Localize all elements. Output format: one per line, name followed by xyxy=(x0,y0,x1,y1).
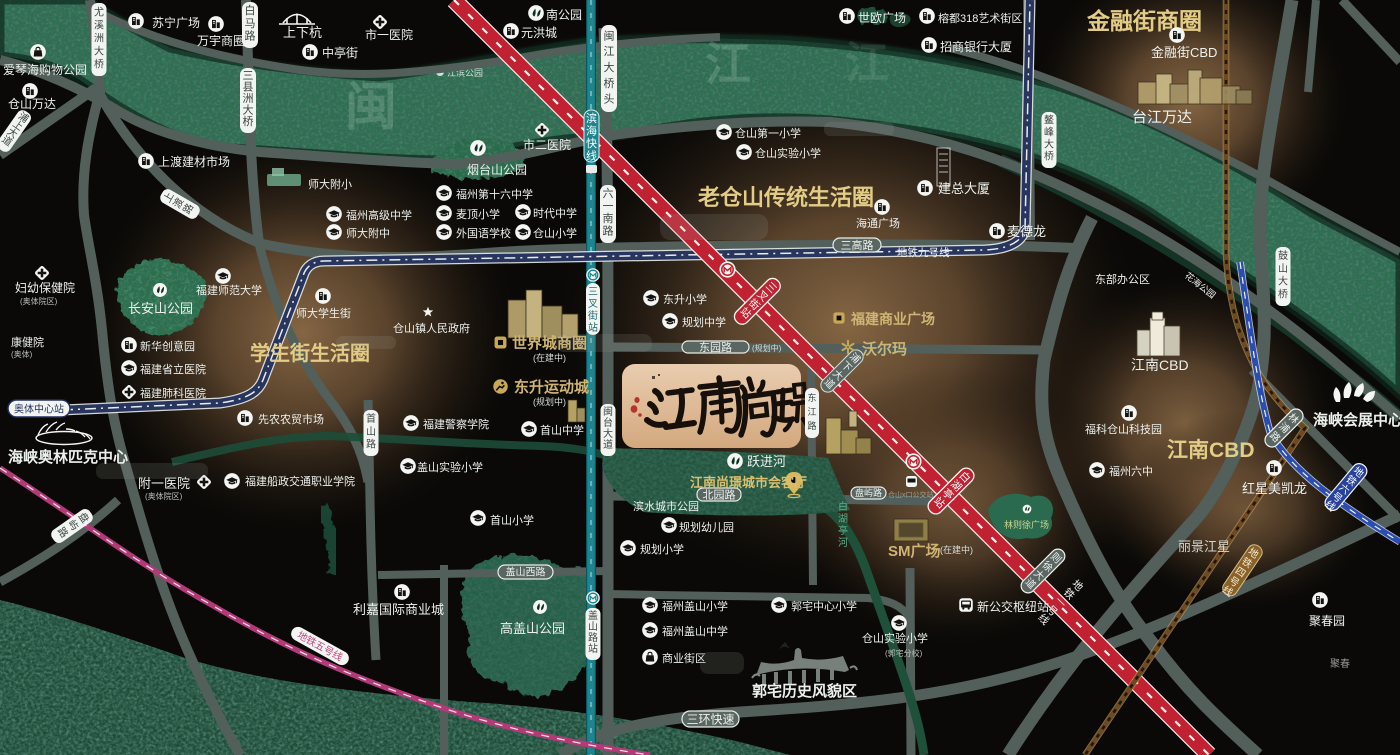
svg-text:万宇商圈: 万宇商圈 xyxy=(197,33,245,48)
svg-text:利嘉国际商业城: 利嘉国际商业城 xyxy=(353,602,444,617)
svg-text:福建船政交通职业学院: 福建船政交通职业学院 xyxy=(245,474,355,488)
svg-text:地铁九号线: 地铁九号线 xyxy=(897,246,950,259)
svg-text:(奥体院区): (奥体院区) xyxy=(20,296,58,306)
svg-text:盖山西路: 盖山西路 xyxy=(506,566,546,579)
svg-text:闽江大桥头: 闽江大桥头 xyxy=(604,29,615,105)
svg-text:金融街商圈: 金融街商圈 xyxy=(1086,8,1202,34)
svg-text:老仓山传统生活圈: 老仓山传统生活圈 xyxy=(697,185,874,210)
svg-text:首山中学: 首山中学 xyxy=(540,423,584,437)
svg-text:上渡建材市场: 上渡建材市场 xyxy=(158,154,230,169)
svg-text:聚春: 聚春 xyxy=(1330,658,1350,670)
svg-text:聚春园: 聚春园 xyxy=(1309,614,1345,628)
svg-text:鼓山大桥: 鼓山大桥 xyxy=(1278,249,1288,300)
svg-text:福州高级中学: 福州高级中学 xyxy=(346,208,412,222)
svg-text:爱琴海购物公园: 爱琴海购物公园 xyxy=(3,62,87,77)
svg-text:东部办公区: 东部办公区 xyxy=(1095,272,1150,286)
svg-text:外国语学校: 外国语学校 xyxy=(456,226,511,240)
svg-text:盘屿路: 盘屿路 xyxy=(855,487,882,498)
svg-text:福建省立医院: 福建省立医院 xyxy=(140,362,206,376)
svg-text:规划幼儿园: 规划幼儿园 xyxy=(679,520,734,534)
svg-text:六一南路: 六一南路 xyxy=(603,187,614,238)
svg-text:江南CBD: 江南CBD xyxy=(1167,438,1255,462)
svg-text:仓山x口公交站: 仓山x口公交站 xyxy=(888,490,934,499)
svg-text:东升小学: 东升小学 xyxy=(663,292,707,306)
svg-text:妇幼保健院: 妇幼保健院 xyxy=(15,281,75,295)
svg-text:海峡会展中心: 海峡会展中心 xyxy=(1313,411,1400,429)
svg-text:鳌峰大桥: 鳌峰大桥 xyxy=(1044,114,1054,163)
svg-text:(规划中): (规划中) xyxy=(752,343,782,353)
svg-text:福建师范大学: 福建师范大学 xyxy=(196,283,262,297)
svg-text:北园路: 北园路 xyxy=(703,489,736,502)
svg-text:先农农贸市场: 先农农贸市场 xyxy=(258,412,324,426)
svg-text:福州第十六中学: 福州第十六中学 xyxy=(456,187,533,201)
svg-text:(在建中): (在建中) xyxy=(533,352,566,363)
svg-text:康健院: 康健院 xyxy=(11,335,44,349)
svg-text:时代中学: 时代中学 xyxy=(533,206,577,220)
svg-text:麦顶小学: 麦顶小学 xyxy=(456,207,500,221)
svg-text:台江万达: 台江万达 xyxy=(1132,109,1192,126)
svg-text:规划小学: 规划小学 xyxy=(640,542,684,556)
svg-text:林则徐广场: 林则徐广场 xyxy=(1004,519,1049,530)
svg-text:滨水城市公园: 滨水城市公园 xyxy=(633,499,699,513)
svg-text:榕都318艺术街区: 榕都318艺术街区 xyxy=(938,11,1022,25)
svg-text:三叉街站: 三叉街站 xyxy=(588,287,598,334)
svg-text:南公园: 南公园 xyxy=(546,7,582,22)
svg-text:郭宅历史风貌区: 郭宅历史风貌区 xyxy=(752,682,857,700)
svg-text:师大附中: 师大附中 xyxy=(346,226,390,240)
svg-text:江南CBD: 江南CBD xyxy=(1131,357,1189,373)
svg-text:福建肺科医院: 福建肺科医院 xyxy=(140,386,206,400)
svg-text:(规划中): (规划中) xyxy=(533,396,566,407)
svg-text:红星美凯龙: 红星美凯龙 xyxy=(1242,481,1307,496)
svg-text:三环快速: 三环快速 xyxy=(686,712,734,726)
svg-text:东园路: 东园路 xyxy=(699,341,732,354)
svg-text:新公交枢纽站: 新公交枢纽站 xyxy=(977,599,1049,614)
svg-text:三县洲大桥: 三县洲大桥 xyxy=(243,70,254,128)
svg-text:奥体中心站: 奥体中心站 xyxy=(14,403,64,416)
svg-text:江: 江 xyxy=(705,38,751,90)
svg-text:仓山第一小学: 仓山第一小学 xyxy=(735,126,801,140)
svg-text:高盖山公园: 高盖山公园 xyxy=(500,621,565,636)
svg-text:仓山实验小学: 仓山实验小学 xyxy=(755,146,821,160)
svg-text:(奥体院区): (奥体院区) xyxy=(145,491,183,501)
svg-text:仓山万达: 仓山万达 xyxy=(8,97,56,111)
svg-text:招商银行大厦: 招商银行大厦 xyxy=(940,39,1012,54)
svg-text:盖山路站: 盖山路站 xyxy=(588,609,598,655)
svg-text:海通广场: 海通广场 xyxy=(856,216,900,230)
svg-text:滨海快线: 滨海快线 xyxy=(586,111,597,163)
svg-text:福州盖山小学: 福州盖山小学 xyxy=(662,599,728,613)
svg-text:福科仓山科技园: 福科仓山科技园 xyxy=(1085,422,1162,436)
svg-text:仓山小学: 仓山小学 xyxy=(533,226,577,240)
svg-text:长安山公园: 长安山公园 xyxy=(128,301,193,316)
svg-text:师大学生街: 师大学生街 xyxy=(296,306,351,320)
svg-text:中亭街: 中亭街 xyxy=(322,45,358,60)
svg-text:江南尚璟城市会客厅: 江南尚璟城市会客厅 xyxy=(690,475,807,490)
svg-text:沃尔玛: 沃尔玛 xyxy=(862,340,907,358)
svg-text:郭宅中心小学: 郭宅中心小学 xyxy=(791,599,857,613)
svg-text:(奥体): (奥体) xyxy=(11,349,33,359)
svg-text:金融街CBD: 金融街CBD xyxy=(1151,45,1217,60)
svg-text:(郭宅分校): (郭宅分校) xyxy=(885,648,923,658)
svg-text:白马路: 白马路 xyxy=(245,3,256,42)
svg-text:市一医院: 市一医院 xyxy=(365,27,413,42)
svg-text:建总大厦: 建总大厦 xyxy=(938,181,990,196)
svg-text:首山路: 首山路 xyxy=(366,412,376,450)
svg-text:仓山实验小学: 仓山实验小学 xyxy=(862,631,928,645)
svg-text:福州六中: 福州六中 xyxy=(1109,464,1153,478)
svg-text:三高路: 三高路 xyxy=(841,238,874,252)
svg-text:商业街区: 商业街区 xyxy=(662,651,706,665)
svg-text:仓山镇人民政府: 仓山镇人民政府 xyxy=(393,321,470,335)
svg-text:福建商业广场: 福建商业广场 xyxy=(850,311,935,327)
svg-text:丽景江星: 丽景江星 xyxy=(1178,539,1230,554)
svg-text:规划中学: 规划中学 xyxy=(682,315,726,329)
svg-text:福建警察学院: 福建警察学院 xyxy=(423,417,489,431)
svg-text:(在建中): (在建中) xyxy=(940,544,973,555)
svg-text:东升运动城: 东升运动城 xyxy=(514,378,589,396)
svg-text:SM广场: SM广场 xyxy=(888,542,941,560)
svg-text:世欧广场: 世欧广场 xyxy=(858,11,906,25)
svg-text:闽: 闽 xyxy=(345,79,397,137)
svg-text:盖山实验小学: 盖山实验小学 xyxy=(417,460,483,474)
svg-text:麦德龙: 麦德龙 xyxy=(1007,224,1046,239)
svg-text:师大附小: 师大附小 xyxy=(308,177,352,191)
svg-text:尤溪洲大桥: 尤溪洲大桥 xyxy=(94,5,104,70)
svg-text:东江路: 东江路 xyxy=(807,392,816,431)
svg-text:闽台大道: 闽台大道 xyxy=(603,405,613,451)
svg-text:苏宁广场: 苏宁广场 xyxy=(152,15,200,30)
svg-text:江: 江 xyxy=(845,39,889,88)
svg-text:首山小学: 首山小学 xyxy=(490,513,534,527)
svg-text:市二医院: 市二医院 xyxy=(523,137,571,152)
svg-text:跃进河: 跃进河 xyxy=(747,454,786,469)
svg-text:白湖亭河: 白湖亭河 xyxy=(838,500,848,549)
svg-text:上下杭: 上下杭 xyxy=(283,25,322,40)
svg-text:福州盖山中学: 福州盖山中学 xyxy=(662,624,728,638)
svg-text:元洪城: 元洪城 xyxy=(521,26,557,40)
svg-text:烟台山公园: 烟台山公园 xyxy=(467,162,527,177)
svg-text:新华创意园: 新华创意园 xyxy=(140,339,195,353)
